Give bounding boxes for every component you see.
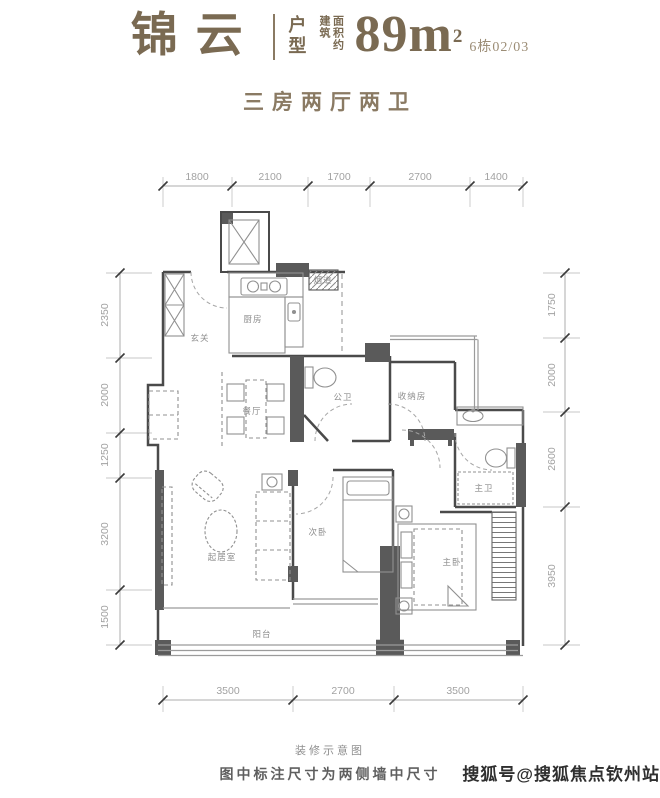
coffee-table-icon bbox=[205, 510, 237, 552]
room-label-living: 起居室 bbox=[208, 552, 237, 562]
room-label-flue: 烟道 bbox=[313, 275, 332, 285]
room-label-master-bedroom: 主卧 bbox=[442, 557, 461, 567]
kitchen-counter-icon bbox=[229, 273, 303, 353]
window-lines bbox=[158, 336, 523, 656]
floorplan-drawing: 1800 2100 1700 2700 1400 3500 2700 3500 … bbox=[0, 0, 660, 798]
dimension-labels-bottom: 3500 2700 3500 bbox=[216, 685, 470, 697]
dim-top-5: 1400 bbox=[484, 171, 508, 183]
entry-door-arc bbox=[191, 272, 227, 308]
stove-icon bbox=[241, 278, 287, 295]
furniture bbox=[149, 212, 523, 614]
room-label-balcony: 阳台 bbox=[252, 629, 271, 639]
dimension-ticks bbox=[116, 182, 570, 705]
dim-right-2: 2000 bbox=[546, 363, 558, 387]
wall-fills bbox=[155, 212, 526, 655]
dim-bottom-3: 3500 bbox=[446, 685, 470, 697]
room-label-kitchen: 厨房 bbox=[243, 314, 262, 324]
armchair-icon bbox=[188, 467, 226, 505]
second-bedroom-door-arc bbox=[296, 477, 333, 514]
dim-left-1: 2350 bbox=[99, 303, 111, 327]
dimension-labels-right: 1750 2000 2600 3950 bbox=[546, 293, 558, 588]
master-bath-door-arc bbox=[455, 433, 492, 470]
washer-icon bbox=[149, 391, 178, 439]
watermark: 搜狐号@搜狐焦点钦州站 bbox=[462, 760, 660, 785]
master-bed-icon bbox=[396, 506, 476, 614]
floorplan-page: 锦云 户型 建筑 面积约 89m2 6栋02/03 三房两厅两卫 bbox=[0, 0, 660, 798]
dim-left-5: 1500 bbox=[99, 605, 111, 629]
public-bath-door-arc bbox=[315, 404, 352, 441]
toilet-icon bbox=[305, 367, 336, 388]
dim-right-1: 1750 bbox=[546, 293, 558, 317]
dimension-guides bbox=[106, 177, 580, 712]
drawing-caption: 装修示意图 bbox=[0, 742, 660, 758]
room-label-entry: 玄关 bbox=[190, 333, 209, 343]
dimension-labels-top: 1800 2100 1700 2700 1400 bbox=[185, 171, 508, 183]
dim-left-3: 1250 bbox=[99, 443, 111, 467]
master-toilet-icon bbox=[486, 448, 516, 468]
room-label-master-bath: 主卫 bbox=[474, 483, 493, 493]
room-label-storage: 收纳房 bbox=[398, 391, 427, 401]
dim-left-4: 3200 bbox=[99, 522, 111, 546]
dim-top-2: 2100 bbox=[258, 171, 282, 183]
dim-bottom-2: 2700 bbox=[331, 685, 355, 697]
room-label-second-bedroom: 次卧 bbox=[308, 527, 327, 537]
dim-top-3: 1700 bbox=[327, 171, 351, 183]
dim-top-4: 2700 bbox=[408, 171, 432, 183]
shoe-cabinet-icon bbox=[165, 274, 184, 336]
wardrobe-icon bbox=[492, 512, 516, 600]
dim-top-1: 1800 bbox=[185, 171, 209, 183]
dim-right-4: 3950 bbox=[546, 564, 558, 588]
dim-left-2: 2000 bbox=[99, 383, 111, 407]
dimension-labels-left: 2350 2000 1250 3200 1500 bbox=[99, 303, 111, 629]
dim-bottom-1: 3500 bbox=[216, 685, 240, 697]
dim-right-3: 2600 bbox=[546, 447, 558, 471]
dimension-lines bbox=[120, 186, 565, 700]
room-label-public-bath: 公卫 bbox=[333, 392, 352, 402]
sofa-icon bbox=[256, 474, 290, 580]
room-label-dining: 餐厅 bbox=[242, 406, 261, 416]
